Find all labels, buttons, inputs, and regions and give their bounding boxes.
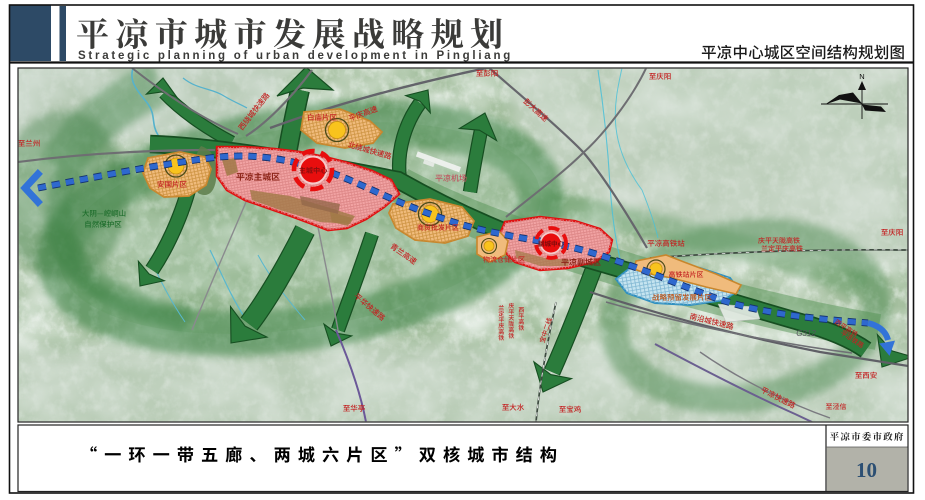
svg-text:10: 10: [856, 458, 877, 482]
svg-text:Strategic planning of urban de: Strategic planning of urban development …: [78, 50, 513, 62]
svg-text:N: N: [859, 72, 864, 81]
svg-text:G312: G312: [796, 329, 816, 338]
